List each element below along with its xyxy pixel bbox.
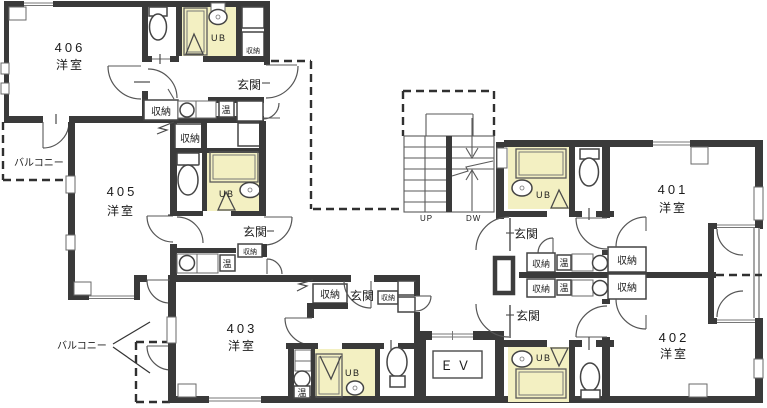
svg-text:温: 温: [559, 283, 568, 293]
svg-text:玄関: 玄関: [243, 224, 267, 239]
svg-text:収納: 収納: [532, 258, 550, 269]
svg-text:玄関: 玄関: [350, 288, 374, 303]
svg-text:バルコニー: バルコニー: [57, 340, 107, 352]
svg-text:収納: 収納: [180, 132, 200, 145]
svg-text:402: 402: [659, 330, 690, 345]
svg-text:洋室: 洋室: [107, 203, 135, 218]
svg-text:洋室: 洋室: [659, 200, 687, 215]
svg-text:406: 406: [55, 40, 86, 55]
svg-text:収納: 収納: [320, 288, 340, 301]
svg-text:UP: UP: [420, 214, 433, 223]
svg-text:温: 温: [559, 258, 568, 268]
svg-text:バルコニー: バルコニー: [14, 157, 64, 169]
svg-text:収納: 収納: [246, 46, 260, 55]
svg-text:玄関: 玄関: [516, 308, 540, 323]
svg-text:UB: UB: [536, 353, 552, 363]
svg-text:収納: 収納: [617, 254, 637, 267]
svg-text:DW: DW: [466, 214, 481, 223]
svg-text:温: 温: [222, 259, 231, 269]
svg-text:403: 403: [227, 321, 258, 336]
svg-text:収納: 収納: [532, 283, 550, 294]
svg-text:温: 温: [297, 388, 306, 398]
svg-text:玄関: 玄関: [237, 77, 261, 92]
svg-text:UB: UB: [219, 189, 235, 199]
svg-text:洋室: 洋室: [228, 338, 256, 353]
svg-text:UB: UB: [536, 190, 552, 200]
svg-text:収納: 収納: [381, 293, 395, 302]
svg-text:UB: UB: [211, 33, 227, 43]
svg-text:玄関: 玄関: [514, 226, 538, 241]
svg-text:収納: 収納: [617, 281, 637, 294]
svg-text:UB: UB: [345, 368, 361, 378]
svg-text:収納: 収納: [151, 105, 171, 118]
svg-text:ＥＶ: ＥＶ: [440, 358, 474, 373]
svg-text:洋室: 洋室: [56, 57, 84, 72]
svg-text:収納: 収納: [243, 247, 257, 256]
svg-text:405: 405: [107, 184, 138, 199]
svg-text:401: 401: [658, 182, 689, 197]
svg-text:洋室: 洋室: [660, 346, 688, 361]
svg-text:温: 温: [221, 105, 230, 115]
